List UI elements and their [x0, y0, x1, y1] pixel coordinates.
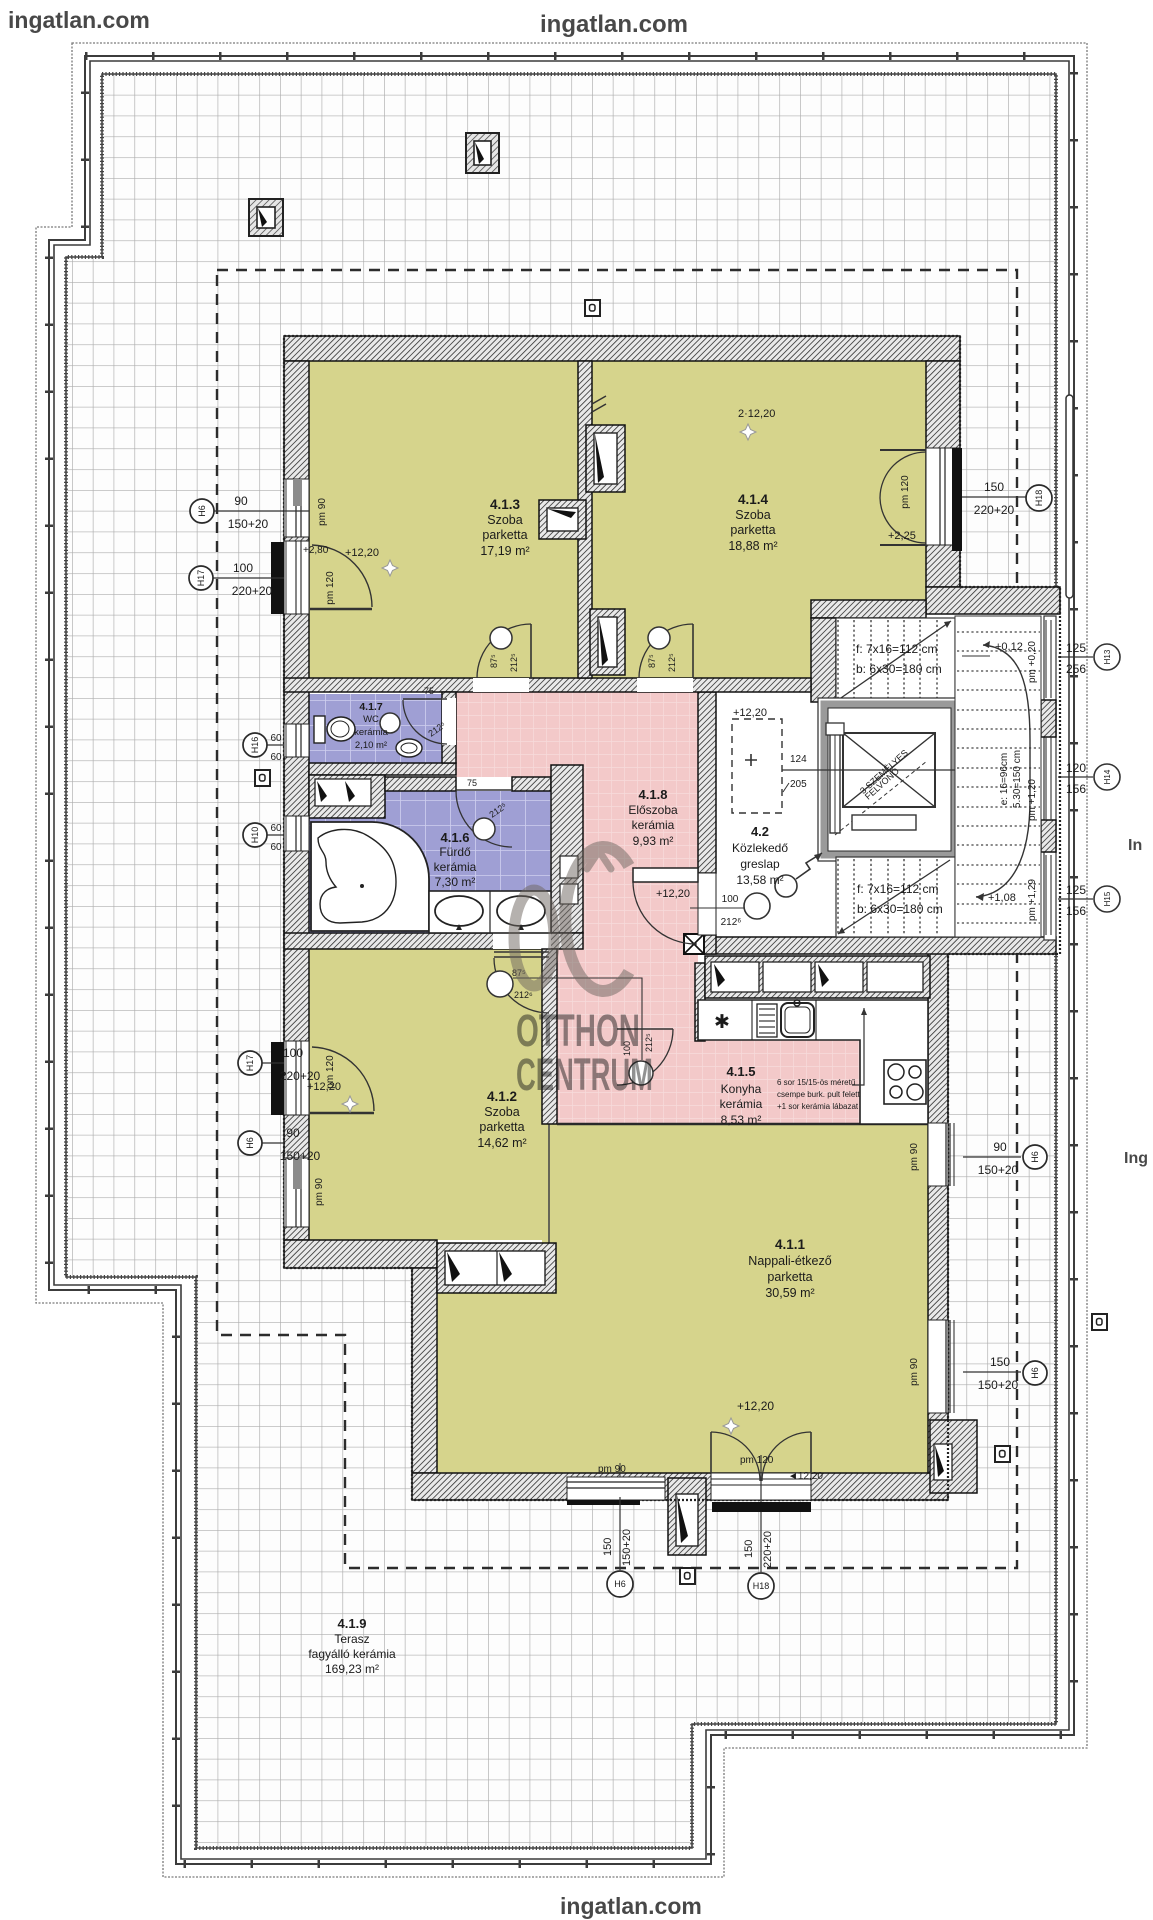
- svg-text:+2,80: +2,80: [303, 545, 329, 556]
- svg-text:100: 100: [233, 561, 253, 575]
- svg-text:ingatlan.com: ingatlan.com: [8, 7, 150, 33]
- svg-text:220+20: 220+20: [974, 503, 1015, 517]
- svg-text:212⁵: 212⁵: [667, 653, 677, 672]
- svg-text:75: 75: [467, 778, 477, 788]
- svg-text:greslap: greslap: [740, 857, 780, 871]
- svg-text:+1 sor kerámia lábazat: +1 sor kerámia lábazat: [777, 1102, 859, 1111]
- svg-text:pm 90: pm 90: [598, 1464, 626, 1475]
- svg-text:150+20: 150+20: [978, 1163, 1019, 1177]
- svg-text:4.1.7: 4.1.7: [359, 701, 383, 713]
- svg-text:pm +1,20: pm +1,20: [1027, 779, 1038, 821]
- svg-text:pm 120: pm 120: [740, 1455, 774, 1466]
- svg-text:2,10 m²: 2,10 m²: [355, 740, 387, 751]
- svg-text:f: 7x16=112 cm: f: 7x16=112 cm: [856, 642, 938, 656]
- svg-text:156: 156: [1066, 904, 1086, 918]
- svg-text:4.1.4: 4.1.4: [738, 492, 769, 507]
- svg-text:4.1.5: 4.1.5: [727, 1064, 756, 1079]
- svg-text:7,30 m²: 7,30 m²: [435, 875, 476, 889]
- svg-text:b: 6x30=180 cm: b: 6x30=180 cm: [857, 902, 943, 916]
- svg-text:4.1.8: 4.1.8: [639, 787, 668, 802]
- svg-text:+1,08: +1,08: [988, 892, 1016, 904]
- svg-text:H10: H10: [250, 827, 260, 844]
- svg-text:parketta: parketta: [482, 528, 527, 542]
- svg-text:18,88 m²: 18,88 m²: [728, 539, 777, 553]
- svg-text:ingatlan.com: ingatlan.com: [540, 11, 688, 38]
- svg-text:parketta: parketta: [479, 1120, 524, 1134]
- svg-text:220+20: 220+20: [762, 1531, 774, 1568]
- svg-text:+12,20: +12,20: [737, 1399, 774, 1413]
- svg-text:H18: H18: [1034, 490, 1044, 507]
- svg-text:Szoba: Szoba: [484, 1105, 519, 1119]
- svg-text:150+20: 150+20: [280, 1149, 321, 1163]
- svg-text:In: In: [1128, 837, 1142, 854]
- svg-text:◄12,20: ◄12,20: [788, 1471, 823, 1482]
- svg-text:e: 16=96cm: e: 16=96cm: [999, 753, 1010, 806]
- svg-text:90: 90: [286, 1126, 300, 1140]
- svg-text:b: 6x30=180 cm: b: 6x30=180 cm: [856, 662, 942, 676]
- svg-text:9,93 m²: 9,93 m²: [633, 834, 674, 848]
- svg-text:75: 75: [424, 686, 434, 696]
- svg-text:parketta: parketta: [767, 1270, 812, 1284]
- svg-text:H17: H17: [245, 1055, 255, 1072]
- svg-text:5.30=150 cm: 5.30=150 cm: [1012, 750, 1023, 808]
- svg-text:+12,20: +12,20: [307, 1081, 341, 1093]
- svg-text:100: 100: [283, 1046, 303, 1060]
- svg-text:H6: H6: [1030, 1367, 1040, 1379]
- svg-text:H6: H6: [197, 505, 207, 517]
- svg-text:2·12,20: 2·12,20: [738, 408, 775, 420]
- svg-text:H14: H14: [1103, 769, 1112, 784]
- svg-text:pm 90: pm 90: [317, 498, 328, 526]
- svg-text:150: 150: [984, 480, 1004, 494]
- svg-text:156: 156: [1066, 782, 1086, 796]
- svg-text:212⁶: 212⁶: [721, 917, 742, 928]
- svg-text:pm 90: pm 90: [909, 1358, 920, 1386]
- svg-text:pm 90: pm 90: [314, 1178, 325, 1206]
- svg-text:H6: H6: [1030, 1151, 1040, 1163]
- svg-text:WC: WC: [363, 714, 379, 725]
- svg-text:H16: H16: [250, 737, 260, 754]
- svg-text:parketta: parketta: [730, 523, 775, 537]
- svg-text:Nappali-étkező: Nappali-étkező: [748, 1254, 831, 1268]
- svg-text:pm 90: pm 90: [909, 1143, 920, 1171]
- svg-text:17,19 m²: 17,19 m²: [480, 544, 529, 558]
- svg-text:150+20: 150+20: [978, 1378, 1019, 1392]
- svg-text:H17: H17: [196, 570, 206, 587]
- svg-text:4.1.1: 4.1.1: [775, 1237, 806, 1252]
- svg-text:90: 90: [234, 494, 248, 508]
- svg-text:169,23 m²: 169,23 m²: [325, 1662, 379, 1676]
- svg-text:Terasz: Terasz: [334, 1632, 369, 1646]
- svg-text:CENTRUM: CENTRUM: [516, 1049, 653, 1100]
- svg-text:Közlekedő: Közlekedő: [732, 841, 788, 855]
- svg-text:pm 120: pm 120: [325, 571, 336, 605]
- svg-text:Előszoba: Előszoba: [628, 803, 678, 817]
- svg-text:150+20: 150+20: [621, 1529, 633, 1566]
- svg-text:kerámia: kerámia: [434, 860, 477, 874]
- svg-text:13,58 m²: 13,58 m²: [736, 873, 783, 887]
- svg-text:Ing: Ing: [1124, 1150, 1148, 1167]
- svg-text:fagyálló kerámia: fagyálló kerámia: [308, 1647, 396, 1661]
- svg-text:205: 205: [790, 779, 807, 790]
- svg-text:60: 60: [270, 733, 282, 744]
- svg-text:6 sor 15/15-ös méretű: 6 sor 15/15-ös méretű: [777, 1078, 856, 1087]
- svg-text:100: 100: [722, 894, 739, 905]
- svg-text:Fürdő: Fürdő: [439, 845, 471, 859]
- svg-text:Konyha: Konyha: [721, 1082, 762, 1096]
- svg-text:120: 120: [1066, 761, 1086, 775]
- svg-text:pm +0,20: pm +0,20: [1027, 641, 1038, 683]
- svg-text:256: 256: [1066, 662, 1086, 676]
- svg-text:ingatlan.com: ingatlan.com: [560, 1893, 702, 1919]
- svg-text:4.1.3: 4.1.3: [490, 497, 521, 512]
- svg-text:+2,25: +2,25: [888, 530, 916, 542]
- svg-text:H18: H18: [753, 1581, 770, 1591]
- svg-text:60: 60: [270, 842, 282, 853]
- svg-text:4.1.9: 4.1.9: [338, 1616, 367, 1631]
- svg-text:150+20: 150+20: [228, 517, 269, 531]
- svg-text:14,62 m²: 14,62 m²: [477, 1136, 526, 1150]
- svg-text:kerámia: kerámia: [354, 727, 389, 738]
- svg-text:f: 7x16=112 cm: f: 7x16=112 cm: [857, 882, 939, 896]
- svg-text:87⁵: 87⁵: [489, 654, 499, 668]
- svg-text:✱: ✱: [714, 1012, 730, 1033]
- svg-text:H13: H13: [1103, 649, 1112, 664]
- svg-text:+12,20: +12,20: [656, 888, 690, 900]
- svg-text:4.1.2: 4.1.2: [487, 1089, 517, 1104]
- svg-text:90: 90: [993, 1140, 1007, 1154]
- svg-text:+0,12: +0,12: [995, 641, 1023, 653]
- svg-text:4.1.6: 4.1.6: [441, 830, 470, 845]
- svg-text:150: 150: [602, 1538, 614, 1556]
- svg-text:150: 150: [990, 1355, 1010, 1369]
- svg-text:csempe burk. pult felett: csempe burk. pult felett: [777, 1090, 860, 1099]
- svg-text:pm 120: pm 120: [900, 475, 911, 509]
- svg-text:150: 150: [743, 1540, 755, 1558]
- svg-text:212⁶: 212⁶: [514, 990, 533, 1000]
- svg-text:60: 60: [270, 823, 282, 834]
- svg-text:125: 125: [1066, 641, 1086, 655]
- svg-text:+12,20: +12,20: [733, 707, 767, 719]
- svg-text:8,53 m²: 8,53 m²: [721, 1113, 762, 1127]
- svg-text:220+20: 220+20: [232, 584, 273, 598]
- svg-text:30,59 m²: 30,59 m²: [765, 1286, 814, 1300]
- svg-text:212⁵: 212⁵: [509, 653, 519, 672]
- svg-text:Szoba: Szoba: [487, 513, 522, 527]
- svg-text:4.2: 4.2: [751, 824, 769, 839]
- svg-text:kerámia: kerámia: [720, 1097, 763, 1111]
- svg-text:kerámia: kerámia: [632, 818, 675, 832]
- svg-text:125: 125: [1066, 883, 1086, 897]
- svg-text:60: 60: [270, 752, 282, 763]
- svg-text:124: 124: [790, 754, 807, 765]
- svg-text:Szoba: Szoba: [735, 508, 770, 522]
- svg-text:87⁵: 87⁵: [647, 654, 657, 668]
- svg-text:+12,20: +12,20: [345, 547, 379, 559]
- svg-text:H6: H6: [245, 1137, 255, 1149]
- svg-text:pm +1,29: pm +1,29: [1027, 879, 1038, 921]
- svg-text:H6: H6: [614, 1579, 626, 1589]
- svg-text:H15: H15: [1103, 891, 1112, 906]
